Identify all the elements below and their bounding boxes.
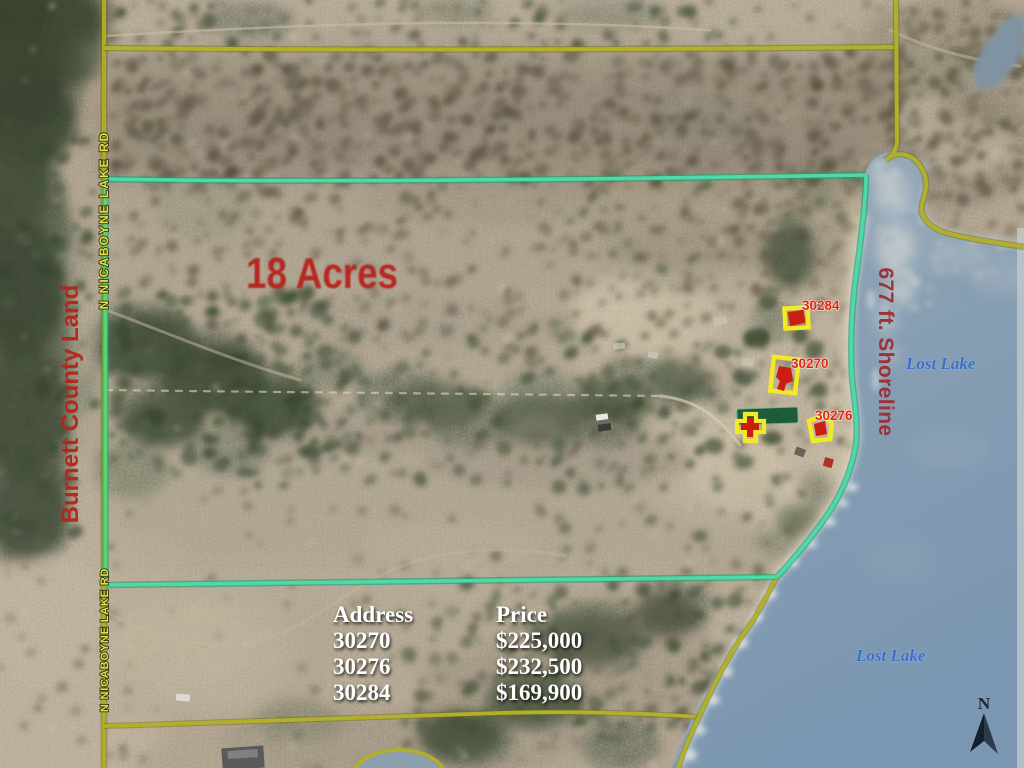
svg-text:677 ft. Shoreline: 677 ft. Shoreline xyxy=(874,267,897,436)
svg-text:18 Acres: 18 Acres xyxy=(246,249,398,298)
svg-text:N NICABOYNE LAKE RD: N NICABOYNE LAKE RD xyxy=(99,568,111,712)
svg-text:Price: Price xyxy=(496,602,547,627)
svg-text:Lost Lake: Lost Lake xyxy=(855,646,926,665)
svg-text:Address: Address xyxy=(333,602,413,627)
svg-text:30270: 30270 xyxy=(333,628,391,653)
svg-text:30284: 30284 xyxy=(333,680,391,705)
svg-text:30276: 30276 xyxy=(815,408,853,423)
svg-text:$225,000: $225,000 xyxy=(496,628,582,653)
svg-text:Lost Lake: Lost Lake xyxy=(905,354,976,373)
svg-text:N: N xyxy=(978,694,991,713)
svg-text:30276: 30276 xyxy=(333,654,391,679)
svg-text:30270: 30270 xyxy=(791,356,829,371)
svg-text:$232,500: $232,500 xyxy=(496,654,582,679)
svg-text:30284: 30284 xyxy=(802,298,840,313)
svg-text:Burnett County Land: Burnett County Land xyxy=(57,285,84,524)
svg-text:N NICABOYNE LAKE RD: N NICABOYNE LAKE RD xyxy=(97,131,111,310)
svg-text:$169,900: $169,900 xyxy=(496,680,582,705)
